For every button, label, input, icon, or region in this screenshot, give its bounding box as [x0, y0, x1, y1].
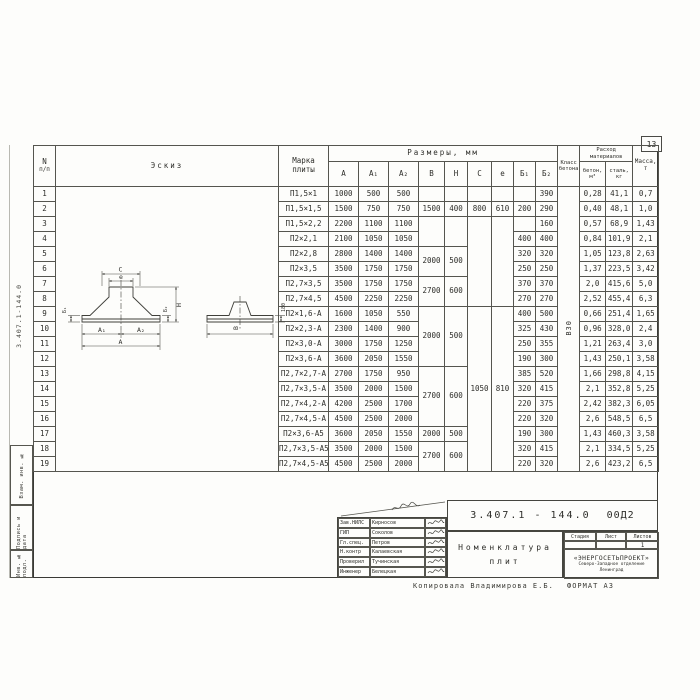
concrete-volume: 1,43: [580, 427, 606, 442]
dim-b1: 325: [514, 322, 536, 337]
mass: 5,25: [633, 442, 659, 457]
concrete-volume: 0,84: [580, 232, 606, 247]
dim-label-a: A: [119, 338, 123, 346]
dim-a1: 2050: [359, 352, 389, 367]
dim-b2: 320: [536, 412, 558, 427]
row-number: 3: [34, 217, 56, 232]
dim-a2: 1700: [389, 397, 419, 412]
dim-a1: 1050: [359, 232, 389, 247]
steel-weight: 250,1: [606, 352, 633, 367]
steel-weight: 382,3: [606, 397, 633, 412]
steel-weight: 68,9: [606, 217, 633, 232]
dim-label-h: H: [175, 303, 183, 307]
dim-b1: [514, 217, 536, 232]
drawing-title-line1: Номенклатура: [458, 541, 552, 555]
dim-a2: 1500: [389, 382, 419, 397]
dim-b: [419, 187, 445, 202]
concrete-volume: 0,57: [580, 217, 606, 232]
dim-label-b1: Б₁: [62, 307, 68, 313]
dim-b2: 300: [536, 352, 558, 367]
copied-by-note: Копировала Владимирова Е.Б.: [413, 582, 554, 590]
dim-b1: 190: [514, 352, 536, 367]
dim-a: 4500: [329, 412, 359, 427]
drawing-sheet: 13 3.407.1-144.0 Взам. инв. № Подпись и …: [0, 0, 700, 700]
plate-mark: П2×3,6-А5: [279, 427, 329, 442]
dim-b: 2700: [419, 442, 445, 472]
dim-b1: 190: [514, 427, 536, 442]
dim-b2: 250: [536, 262, 558, 277]
row-number: 16: [34, 412, 56, 427]
dim-b2: 390: [536, 187, 558, 202]
dim-b2: 355: [536, 337, 558, 352]
stamp-podpis-data: Подпись и дата: [10, 505, 33, 550]
row-number: 18: [34, 442, 56, 457]
dim-a2: 1550: [389, 427, 419, 442]
dim-a2: 1400: [389, 247, 419, 262]
mass: 5,25: [633, 382, 659, 397]
row-number: 11: [34, 337, 56, 352]
concrete-volume: 2,6: [580, 412, 606, 427]
dim-a: 1500: [329, 202, 359, 217]
stamp-inv-podl: Инв. № подл.: [10, 550, 33, 578]
mass: 1,65: [633, 307, 659, 322]
concrete-volume: 2,1: [580, 442, 606, 457]
title-block-diagonal: [337, 500, 447, 517]
mass: 2,1: [633, 232, 659, 247]
dim-b1: 385: [514, 367, 536, 382]
mass: 2,63: [633, 247, 659, 262]
dim-a2: 2250: [389, 292, 419, 307]
row-number: 10: [34, 322, 56, 337]
signatory-name: Белецкая: [370, 567, 425, 577]
row-number: 6: [34, 262, 56, 277]
stage-sheet-block: Стадия Лист Листов 1 «ЭНЕРГОСЕТЬПРОЕКТ» …: [563, 531, 658, 578]
stage-value: [564, 541, 596, 549]
signatory-name: Тучинская: [370, 557, 425, 567]
signature-squiggle: [425, 567, 446, 577]
header-col-concrete: бетон, м³: [580, 162, 606, 187]
header-col-h: H: [445, 162, 468, 187]
dim-c: [468, 217, 492, 307]
header-consumption: Расход материалов: [580, 146, 633, 162]
dim-a: 3500: [329, 262, 359, 277]
steel-weight: 123,8: [606, 247, 633, 262]
signatory-name: Кирносов: [370, 518, 425, 528]
dim-e: 810: [492, 307, 514, 472]
dim-b1: 370: [514, 277, 536, 292]
dim-a2: 550: [389, 307, 419, 322]
dim-b2: 320: [536, 247, 558, 262]
dim-a: 3500: [329, 277, 359, 292]
dim-h: 500: [445, 247, 468, 277]
sheet-header: Лист: [596, 532, 626, 541]
dim-a: 3600: [329, 352, 359, 367]
header-col-b2: Б₂: [536, 162, 558, 187]
row-number: 9: [34, 307, 56, 322]
dim-b1: 270: [514, 292, 536, 307]
mass: 1,0: [633, 202, 659, 217]
drawing-title-cell: Номенклатура плит: [447, 531, 563, 578]
dim-b1: 220: [514, 397, 536, 412]
steel-weight: 263,4: [606, 337, 633, 352]
dim-h: 600: [445, 277, 468, 307]
signature-squiggle: [425, 518, 446, 528]
vertical-doc-number-wrap: 3.407.1-144.0: [10, 252, 27, 380]
mass: 3,58: [633, 352, 659, 367]
signature-squiggle: [425, 528, 446, 538]
row-number: 13: [34, 367, 56, 382]
dim-label-180: 180: [281, 303, 287, 312]
mass: 6,05: [633, 397, 659, 412]
dim-b: 2000: [419, 307, 445, 367]
mass: 2,4: [633, 322, 659, 337]
dim-a1: 2250: [359, 292, 389, 307]
dim-a1: 1750: [359, 367, 389, 382]
header-sizes: Размеры, мм: [329, 146, 558, 162]
sheets-header: Листов: [626, 532, 659, 541]
row-number: 15: [34, 397, 56, 412]
dim-b2: 400: [536, 232, 558, 247]
steel-weight: 328,0: [606, 322, 633, 337]
concrete-volume: 0,40: [580, 202, 606, 217]
steel-weight: 48,1: [606, 202, 633, 217]
dim-label-a1: A₁: [98, 326, 106, 334]
dim-b: 2700: [419, 277, 445, 307]
dim-b: 2000: [419, 427, 445, 442]
dim-label-b: B: [232, 326, 240, 330]
dim-a1: 1050: [359, 307, 389, 322]
dim-b2: 290: [536, 202, 558, 217]
header-concrete-class: Класс бетона: [558, 146, 580, 187]
dim-label-e: e: [119, 273, 123, 281]
dim-h: 600: [445, 367, 468, 427]
plate-mark: П2,7×4,2-А: [279, 397, 329, 412]
concrete-volume: 1,21: [580, 337, 606, 352]
signature-squiggle: [425, 557, 446, 567]
dim-b: 1500: [419, 202, 445, 217]
steel-weight: 41,1: [606, 187, 633, 202]
signatory-role: Н.контр: [338, 547, 370, 557]
dim-b1: 320: [514, 247, 536, 262]
mass: 0,7: [633, 187, 659, 202]
dim-h: 500: [445, 307, 468, 367]
dim-h: 400: [445, 202, 468, 217]
dim-b1: 200: [514, 202, 536, 217]
mass: 3,42: [633, 262, 659, 277]
doc-suffix: 00Д2: [607, 510, 635, 521]
dim-b1: 250: [514, 262, 536, 277]
dim-a1: 2500: [359, 457, 389, 472]
dim-a1: 1400: [359, 247, 389, 262]
plate-mark: П2,7×4,5-А5: [279, 457, 329, 472]
dim-a: 4500: [329, 292, 359, 307]
header-mark: Марка плиты: [279, 146, 329, 187]
mass: 6,5: [633, 412, 659, 427]
mass: 6,3: [633, 292, 659, 307]
dim-a2: 900: [389, 322, 419, 337]
dim-a: 3500: [329, 442, 359, 457]
row-number: 2: [34, 202, 56, 217]
dim-a: 2800: [329, 247, 359, 262]
plate-mark: П1,5×1,5: [279, 202, 329, 217]
concrete-volume: 2,52: [580, 292, 606, 307]
dim-b: 2000: [419, 247, 445, 277]
dim-a2: 1250: [389, 337, 419, 352]
dim-c: [468, 187, 492, 202]
dim-a2: 950: [389, 367, 419, 382]
dim-a1: 2500: [359, 397, 389, 412]
header-col-steel: сталь, кг: [606, 162, 633, 187]
dim-b1: 320: [514, 442, 536, 457]
concrete-volume: 2,1: [580, 382, 606, 397]
signature-squiggle: [425, 538, 446, 548]
header-col-c: C: [468, 162, 492, 187]
concrete-volume: 1,05: [580, 247, 606, 262]
dim-b2: 270: [536, 292, 558, 307]
plate-mark: П2,7×3,5-А: [279, 382, 329, 397]
concrete-volume: 1,37: [580, 262, 606, 277]
steel-weight: 101,9: [606, 232, 633, 247]
signature-squiggle: [425, 547, 446, 557]
dim-a: 3000: [329, 337, 359, 352]
concrete-volume: 2,6: [580, 457, 606, 472]
concrete-volume: 0,96: [580, 322, 606, 337]
row-number: 17: [34, 427, 56, 442]
dim-h: [445, 187, 468, 202]
dim-a1: 2000: [359, 442, 389, 457]
dim-a: 4200: [329, 397, 359, 412]
steel-weight: 548,5: [606, 412, 633, 427]
dim-a1: 1750: [359, 262, 389, 277]
dim-a2: 2000: [389, 412, 419, 427]
steel-weight: 415,6: [606, 277, 633, 292]
organization-city: Ленинград: [600, 568, 624, 574]
dim-a: 2100: [329, 232, 359, 247]
stamp-vzam-inv: Взам. инв. №: [10, 445, 33, 505]
plate-mark: П2,7×3,5-А5: [279, 442, 329, 457]
dim-a: 1000: [329, 187, 359, 202]
row-number: 19: [34, 457, 56, 472]
plate-mark: П2,7×4,5-А: [279, 412, 329, 427]
mass: 3,58: [633, 427, 659, 442]
plate-mark: П2,7×2,7-А: [279, 367, 329, 382]
dim-a2: 1550: [389, 352, 419, 367]
concrete-volume: 1,66: [580, 367, 606, 382]
steel-weight: 298,8: [606, 367, 633, 382]
drawing-title-line2: плит: [489, 555, 520, 569]
dim-b1: 250: [514, 337, 536, 352]
header-sketch: Эскиз: [56, 146, 279, 187]
signatory-name: Петров: [370, 538, 425, 548]
header-col-a2: A₂: [389, 162, 419, 187]
dim-b2: 415: [536, 442, 558, 457]
mass: 4,15: [633, 367, 659, 382]
dim-b2: 415: [536, 382, 558, 397]
row-number: 12: [34, 352, 56, 367]
dim-b2: 300: [536, 427, 558, 442]
dim-h: [445, 217, 468, 247]
dim-b: 2700: [419, 367, 445, 427]
row-number: 5: [34, 247, 56, 262]
dim-label-a2: A₂: [137, 326, 145, 334]
steel-weight: 423,2: [606, 457, 633, 472]
steel-weight: 334,5: [606, 442, 633, 457]
sheet-value: [596, 541, 626, 549]
dim-a1: 750: [359, 202, 389, 217]
concrete-volume: 0,28: [580, 187, 606, 202]
row-number: 1: [34, 187, 56, 202]
dim-e: [492, 187, 514, 202]
mass: 1,43: [633, 217, 659, 232]
dim-a2: 500: [389, 187, 419, 202]
concrete-class: В30: [565, 320, 573, 336]
dim-a1: 1100: [359, 217, 389, 232]
dim-h: 500: [445, 427, 468, 442]
dim-b1: 320: [514, 382, 536, 397]
title-block: 3.407.1 - 144.0 00Д2 Зав.НИЛСКирносовГИП…: [337, 500, 658, 578]
signatory-role: Проверил: [338, 557, 370, 567]
dim-c: 1050: [468, 307, 492, 472]
steel-weight: 223,5: [606, 262, 633, 277]
dim-a: 2700: [329, 367, 359, 382]
mass: 3,0: [633, 337, 659, 352]
header-col-e: e: [492, 162, 514, 187]
dim-b1: 400: [514, 232, 536, 247]
sheets-value: 1: [626, 541, 659, 549]
mass: 5,0: [633, 277, 659, 292]
dim-b1: [514, 187, 536, 202]
dim-a: 1600: [329, 307, 359, 322]
concrete-class-cell: В30: [558, 187, 580, 472]
header-col-b1: Б₁: [514, 162, 536, 187]
dim-a2: 1100: [389, 217, 419, 232]
dim-a2: 1050: [389, 232, 419, 247]
steel-weight: 460,3: [606, 427, 633, 442]
dim-a2: 2000: [389, 457, 419, 472]
plate-cross-section-sketch: C e A₁ A₂ A Б₁ Б₂ H B 180: [57, 258, 287, 358]
dim-a1: 500: [359, 187, 389, 202]
dim-a2: 1500: [389, 442, 419, 457]
dim-a1: 2000: [359, 382, 389, 397]
concrete-volume: 2,0: [580, 277, 606, 292]
row-number: 4: [34, 232, 56, 247]
signatory-role: ГИП: [338, 528, 370, 538]
signatory-role: Инженер: [338, 567, 370, 577]
row-number: 8: [34, 292, 56, 307]
signatory-role: Зав.НИЛС: [338, 518, 370, 528]
row-number: 7: [34, 277, 56, 292]
dim-e: [492, 217, 514, 307]
dim-a2: 750: [389, 202, 419, 217]
concrete-volume: 1,43: [580, 352, 606, 367]
organization-cell: «ЭНЕРГОСЕТЬПРОЕКТ» Северо-Западное отдел…: [564, 549, 659, 579]
dim-a: 4500: [329, 457, 359, 472]
plate-mark: П1,5×1: [279, 187, 329, 202]
dim-a1: 1400: [359, 322, 389, 337]
vertical-doc-number: 3.407.1-144.0: [15, 284, 23, 348]
dim-label-b2: Б₂: [163, 306, 169, 312]
header-mass: Масса, т: [633, 146, 659, 187]
stage-header: Стадия: [564, 532, 596, 541]
dim-b2: 375: [536, 397, 558, 412]
dim-c: 800: [468, 202, 492, 217]
mass: 6,5: [633, 457, 659, 472]
dim-a: 3500: [329, 382, 359, 397]
dim-a1: 2500: [359, 412, 389, 427]
dim-b2: 520: [536, 367, 558, 382]
dim-h: 600: [445, 442, 468, 472]
header-col-a1: A₁: [359, 162, 389, 187]
dim-b1: 400: [514, 307, 536, 322]
steel-weight: 251,4: [606, 307, 633, 322]
signatory-role: Гл.спец.: [338, 538, 370, 548]
signatures-table: Зав.НИЛСКирносовГИПСоколовГл.спец.Петров…: [337, 517, 447, 578]
concrete-volume: 0,66: [580, 307, 606, 322]
dim-a: 2200: [329, 217, 359, 232]
concrete-volume: 2,42: [580, 397, 606, 412]
dim-b2: 320: [536, 457, 558, 472]
signatory-name: Калаевская: [370, 547, 425, 557]
dim-b1: 220: [514, 457, 536, 472]
dim-a1: 1750: [359, 277, 389, 292]
dim-a2: 1750: [389, 262, 419, 277]
dim-a: 3600: [329, 427, 359, 442]
dim-a1: 2050: [359, 427, 389, 442]
dim-b2: 500: [536, 307, 558, 322]
steel-weight: 352,8: [606, 382, 633, 397]
header-num: N п/п: [34, 146, 56, 187]
doc-number: 3.407.1 - 144.0: [470, 510, 590, 521]
dim-a1: 1750: [359, 337, 389, 352]
dim-b2: 430: [536, 322, 558, 337]
dim-b2: 370: [536, 277, 558, 292]
plate-mark: П2×2,1: [279, 232, 329, 247]
doc-number-cell: 3.407.1 - 144.0 00Д2: [447, 500, 658, 531]
dim-a: 2300: [329, 322, 359, 337]
dim-b: [419, 217, 445, 247]
plate-mark: П1,5×2,2: [279, 217, 329, 232]
steel-weight: 455,4: [606, 292, 633, 307]
header-col-a: A: [329, 162, 359, 187]
header-col-b: B: [419, 162, 445, 187]
row-number: 14: [34, 382, 56, 397]
dim-b2: 160: [536, 217, 558, 232]
dim-e: 610: [492, 202, 514, 217]
dim-b1: 220: [514, 412, 536, 427]
table-row: 1П1,5×11000500500390В300,2841,10,7: [34, 187, 659, 202]
signatory-name: Соколов: [370, 528, 425, 538]
format-note: ФОРМАТ А3: [567, 582, 614, 590]
dim-a2: 1750: [389, 277, 419, 292]
